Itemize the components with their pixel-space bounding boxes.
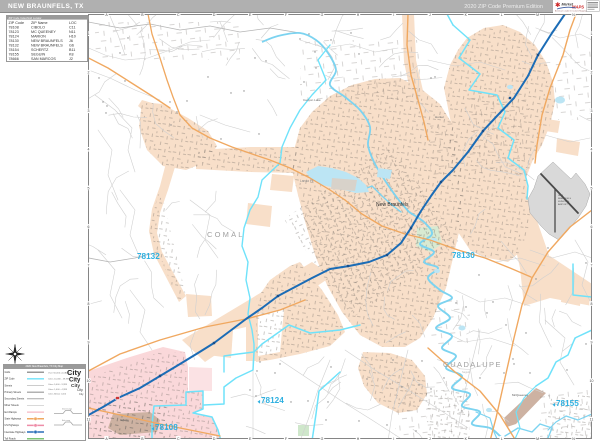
svg-text:Cities 10,000 - 49,999: Cities 10,000 - 49,999 [48,377,70,380]
svg-text:Minor Streets: Minor Streets [4,404,19,407]
svg-text:New Braunfels: New Braunfels [376,202,409,208]
svg-text:Cibolo: Cibolo [120,418,129,422]
svg-text:L: L [501,437,503,441]
svg-text:SEGUIN: SEGUIN [31,53,45,57]
svg-text:CIBOLO: CIBOLO [31,26,45,30]
svg-text:K8: K8 [69,53,74,57]
svg-text:78132: 78132 [9,44,19,48]
svg-text:78132: 78132 [137,252,160,261]
svg-text:9: 9 [591,340,593,344]
svg-text:City: City [67,368,82,377]
svg-text:G: G [321,437,324,441]
svg-text:2: 2 [591,71,593,75]
svg-text:L: L [501,13,503,17]
svg-text:78154: 78154 [9,48,19,52]
svg-text:1: 1 [591,32,593,36]
svg-text:G: G [321,13,324,17]
svg-text:5: 5 [88,186,90,190]
svg-text:I: I [393,13,394,17]
svg-text:B11: B11 [69,48,75,52]
svg-text:Interstate Highways: Interstate Highways [4,430,26,433]
svg-text:G6: G6 [69,44,74,48]
svg-text:I: I [393,437,394,441]
svg-text:MUNICIPAL: MUNICIPAL [558,200,571,203]
svg-text:GUADALUPE: GUADALUPE [443,360,502,369]
svg-text:8: 8 [88,302,90,306]
svg-text:78124: 78124 [9,35,19,39]
svg-text:8: 8 [591,302,593,306]
svg-text:Exit Ramps: Exit Ramps [4,410,17,413]
svg-text:10: 10 [590,379,594,383]
svg-text:LOC: LOC [69,21,77,25]
svg-text:5: 5 [591,186,593,190]
svg-text:4: 4 [88,148,90,152]
svg-text:J6: J6 [69,39,73,43]
svg-text:City: City [69,377,81,383]
svg-text:City: City [77,388,83,392]
svg-text:Cities Below 1,000: Cities Below 1,000 [48,392,67,395]
svg-text:11: 11 [590,418,594,422]
svg-text:Cities 1,000 - 4,999: Cities 1,000 - 4,999 [48,388,68,391]
svg-text:MAPS: MAPS [572,4,584,9]
svg-text:NEW BRAUNFELS: NEW BRAUNFELS [31,44,63,48]
svg-text:State Highways: State Highways [4,417,21,420]
svg-text:78130: 78130 [9,39,19,43]
svg-text:J: J [429,13,431,17]
svg-text:7: 7 [88,263,90,267]
svg-text:SAN MARCOS: SAN MARCOS [31,57,56,61]
svg-text:MC QUEENEY: MC QUEENEY [31,30,56,34]
svg-text:Grids: Grids [4,371,11,374]
svg-text:Exit ramp: Exit ramp [62,419,70,422]
svg-text:78108: 78108 [9,26,19,30]
svg-text:J: J [429,437,431,441]
svg-text:Toll Roads: Toll Roads [4,437,16,440]
svg-text:COMAL: COMAL [207,230,245,239]
svg-text:F: F [285,13,287,17]
svg-text:ZIP Code Index/Grid Locator: ZIP Code Index/Grid Locator [9,16,42,20]
svg-text:AIRPORT: AIRPORT [558,203,568,206]
svg-text:M: M [536,13,539,17]
svg-text:6: 6 [88,225,90,229]
svg-text:BRAUNFELS: BRAUNFELS [558,197,572,200]
svg-text:NEW BRAUNFELS: NEW BRAUNFELS [31,39,63,43]
svg-text:N11: N11 [69,30,76,34]
svg-text:Primary Streets: Primary Streets [4,391,21,394]
svg-text:6: 6 [591,225,593,229]
svg-text:9: 9 [88,340,90,344]
svg-text:Secondary Streets: Secondary Streets [4,397,24,400]
svg-text:City: City [79,392,84,396]
svg-text:H10: H10 [69,35,76,39]
svg-text:Landa Pk: Landa Pk [300,179,314,183]
svg-text:78124: 78124 [261,396,284,405]
svg-text:3: 3 [88,109,90,113]
svg-text:Seguin: Seguin [462,370,471,374]
svg-text:America's Leader In Custom Map: America's Leader In Custom Mapping [555,10,587,13]
svg-text:3: 3 [591,109,593,113]
svg-text:ZIP Code: ZIP Code [9,21,25,25]
svg-text:4: 4 [591,148,593,152]
svg-text:SCHERTZ: SCHERTZ [31,48,49,52]
svg-text:C11: C11 [69,26,76,30]
svg-text:US Highways: US Highways [4,424,19,427]
svg-text:MARION: MARION [31,35,46,39]
svg-text:M: M [536,437,539,441]
svg-text:Interchange: Interchange [62,407,72,410]
svg-text:78108: 78108 [155,423,178,432]
svg-text:F: F [285,437,287,441]
svg-text:Hunter: Hunter [435,115,444,119]
svg-text:78155: 78155 [556,399,579,408]
svg-text:Cities 5,000 - 9,999: Cities 5,000 - 9,999 [48,383,68,386]
svg-text:78155: 78155 [9,53,19,57]
svg-text:2: 2 [88,71,90,75]
svg-text:7: 7 [591,263,593,267]
svg-text:78666: 78666 [9,57,19,61]
svg-text:ZIP Code: ZIP Code [4,377,15,380]
svg-text:78130: 78130 [452,251,475,260]
svg-text:Canyon Lake: Canyon Lake [303,98,321,102]
svg-text:McQueeney: McQueeney [512,393,529,397]
svg-text:78123: 78123 [9,30,19,34]
svg-text:Streets: Streets [4,384,12,387]
svg-text:J2: J2 [69,57,73,61]
svg-text:ZIP Name: ZIP Name [31,21,48,25]
